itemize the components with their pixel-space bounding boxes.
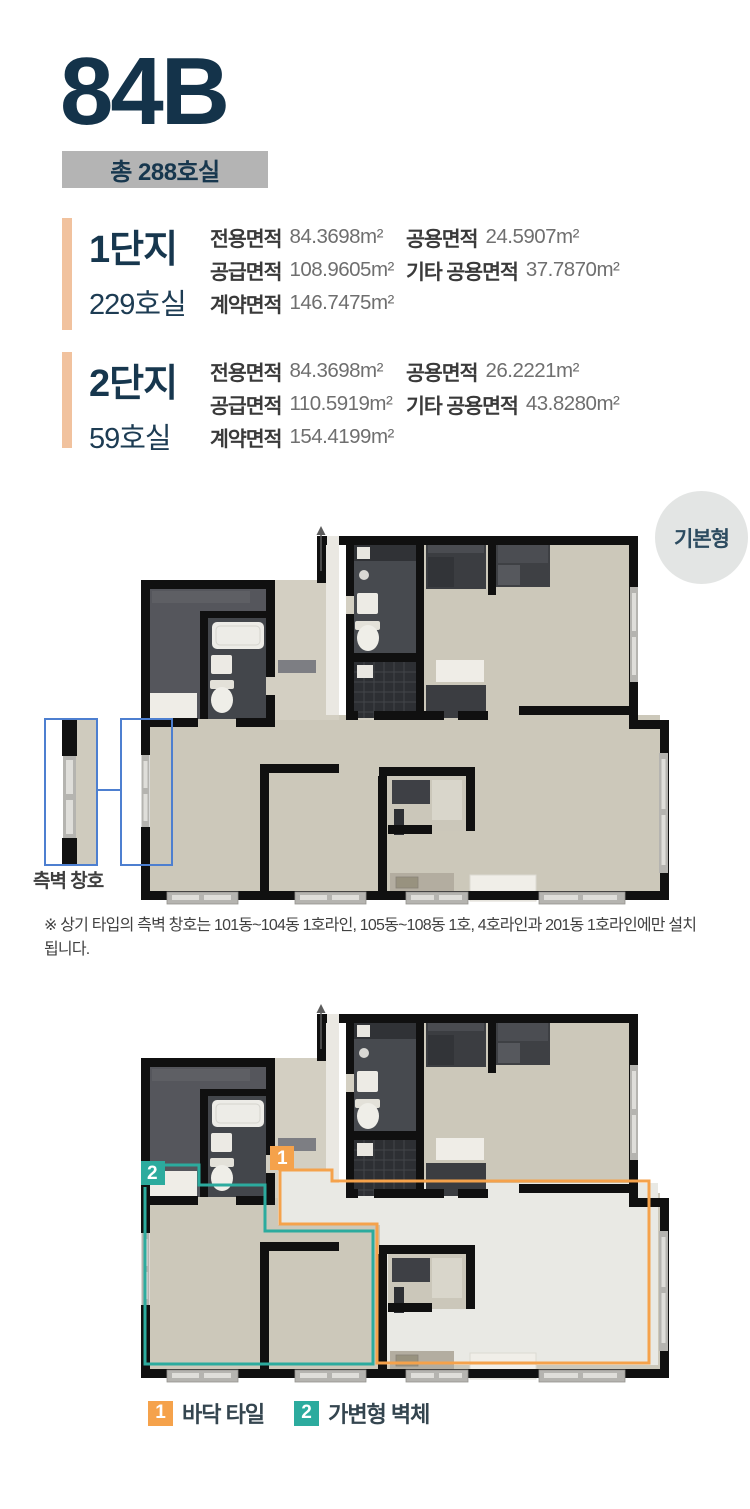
complex-name: 1단지 [89,218,207,273]
marker-2: 2 [147,1163,158,1184]
footnote: ※ 상기 타입의 측벽 창호는 101동~104동 1호라인, 105동~108… [44,911,704,959]
area-row: 기타 공용면적 37.7870m² [406,253,666,286]
area-row: 기타 공용면적 43.8280m² [406,387,666,420]
side-window-highlight-rect [120,718,173,866]
marker-1: 1 [277,1148,288,1169]
area-row: 계약면적 154.4199m² [210,420,406,453]
toilet-icon [357,625,379,651]
floor-plan-basic [140,525,700,905]
floor-plan-option: 1 2 [140,1003,700,1383]
total-units-badge: 총 288호실 [62,151,268,188]
sink-icon [357,593,378,614]
area-row: 전용면적 84.3698m² [210,354,406,387]
section-accent-bar [62,352,72,448]
legend-label-1: 바닥 타일 [182,1397,264,1429]
complex-name: 2단지 [89,352,207,407]
area-row: 계약면적 146.7475m² [210,286,406,319]
area-row: 공용면적 26.2221m² [406,354,666,387]
unit-type-title: 84B [60,42,227,143]
side-window-detail-box [44,718,98,866]
complex-2-section: 2단지 59호실 전용면적 84.3698m² 공급면적 110.5919m² … [62,350,702,450]
legend-item-flexible-wall: 2 가변형 벽체 [294,1397,429,1429]
side-window-label: 측벽 창호 [33,866,103,893]
complex-units: 59호실 [89,415,207,457]
shower-icon [359,570,369,580]
legend-item-floor-tile: 1 바닥 타일 [148,1397,264,1429]
area-row: 공급면적 110.5919m² [210,387,406,420]
section-accent-bar [62,218,72,330]
annotation-connector-line [98,789,121,791]
area-row: 공급면적 108.9605m² [210,253,406,286]
brochure-page: 84B 총 288호실 1단지 229호실 전용면적 84.3698m² 공급면… [0,0,750,1509]
legend-marker-1: 1 [148,1401,173,1426]
toilet-icon [211,1165,233,1191]
legend-marker-2: 2 [294,1401,319,1426]
area-row: 전용면적 84.3698m² [210,220,406,253]
toilet-icon [357,1103,379,1129]
legend: 1 바닥 타일 2 가변형 벽체 [148,1397,429,1429]
complex-units: 229호실 [89,281,207,323]
legend-label-2: 가변형 벽체 [328,1397,429,1429]
area-row: 공용면적 24.5907m² [406,220,666,253]
sink-icon [211,655,232,674]
window-icon [63,756,76,838]
shower-icon [359,1048,369,1058]
sink-icon [211,1133,232,1152]
toilet-icon [211,687,233,713]
sink-icon [357,1071,378,1092]
complex-1-section: 1단지 229호실 전용면적 84.3698m² 공급면적 108.9605m²… [62,216,702,332]
